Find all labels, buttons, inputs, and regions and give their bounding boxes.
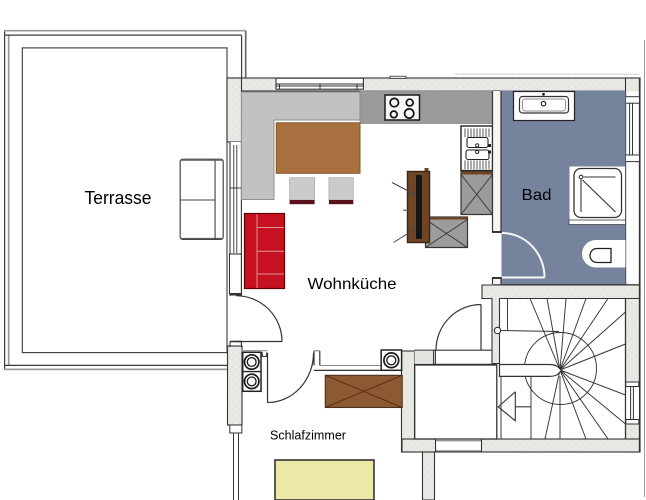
svg-text:Bad: Bad bbox=[522, 187, 552, 204]
svg-text:Terrasse: Terrasse bbox=[85, 188, 152, 208]
svg-text:Wohnküche: Wohnküche bbox=[308, 276, 397, 293]
svg-text:Schlafzimmer: Schlafzimmer bbox=[270, 428, 347, 443]
